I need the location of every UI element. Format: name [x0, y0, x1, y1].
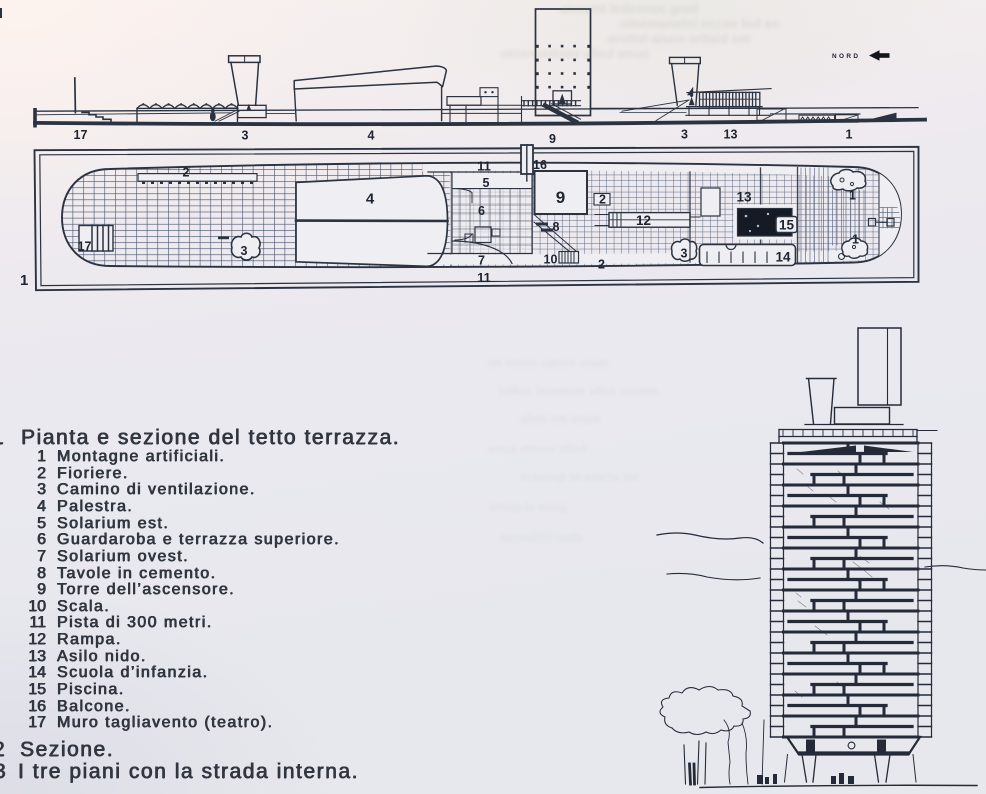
svg-text:3: 3 [681, 128, 688, 142]
svg-text:1: 1 [20, 272, 28, 289]
svg-text:9: 9 [549, 132, 556, 146]
svg-text:12: 12 [636, 213, 651, 228]
svg-text:NORD: NORD [832, 53, 860, 60]
svg-text:8: 8 [553, 220, 560, 234]
svg-text:3: 3 [681, 247, 688, 261]
svg-text:11: 11 [477, 158, 491, 173]
svg-text:14: 14 [775, 250, 791, 265]
svg-text:1: 1 [846, 128, 853, 142]
svg-text:13: 13 [736, 190, 752, 205]
svg-text:17: 17 [78, 240, 92, 254]
svg-text:13: 13 [724, 128, 738, 142]
svg-text:3: 3 [242, 129, 249, 143]
svg-text:2: 2 [598, 258, 605, 272]
svg-text:4: 4 [366, 191, 375, 208]
svg-text:5: 5 [483, 176, 490, 190]
svg-text:2: 2 [599, 193, 606, 207]
svg-text:2: 2 [183, 166, 190, 180]
svg-text:1: 1 [849, 189, 856, 203]
svg-text:11: 11 [477, 270, 491, 285]
svg-text:4: 4 [368, 129, 375, 143]
svg-text:3: 3 [241, 244, 248, 258]
svg-text:17: 17 [74, 128, 88, 142]
svg-text:7: 7 [478, 254, 485, 268]
svg-text:1: 1 [852, 233, 859, 247]
svg-text:16: 16 [533, 158, 547, 172]
svg-text:9: 9 [556, 188, 565, 207]
svg-text:15: 15 [779, 218, 795, 233]
svg-text:10: 10 [544, 253, 558, 267]
svg-text:6: 6 [478, 204, 485, 218]
